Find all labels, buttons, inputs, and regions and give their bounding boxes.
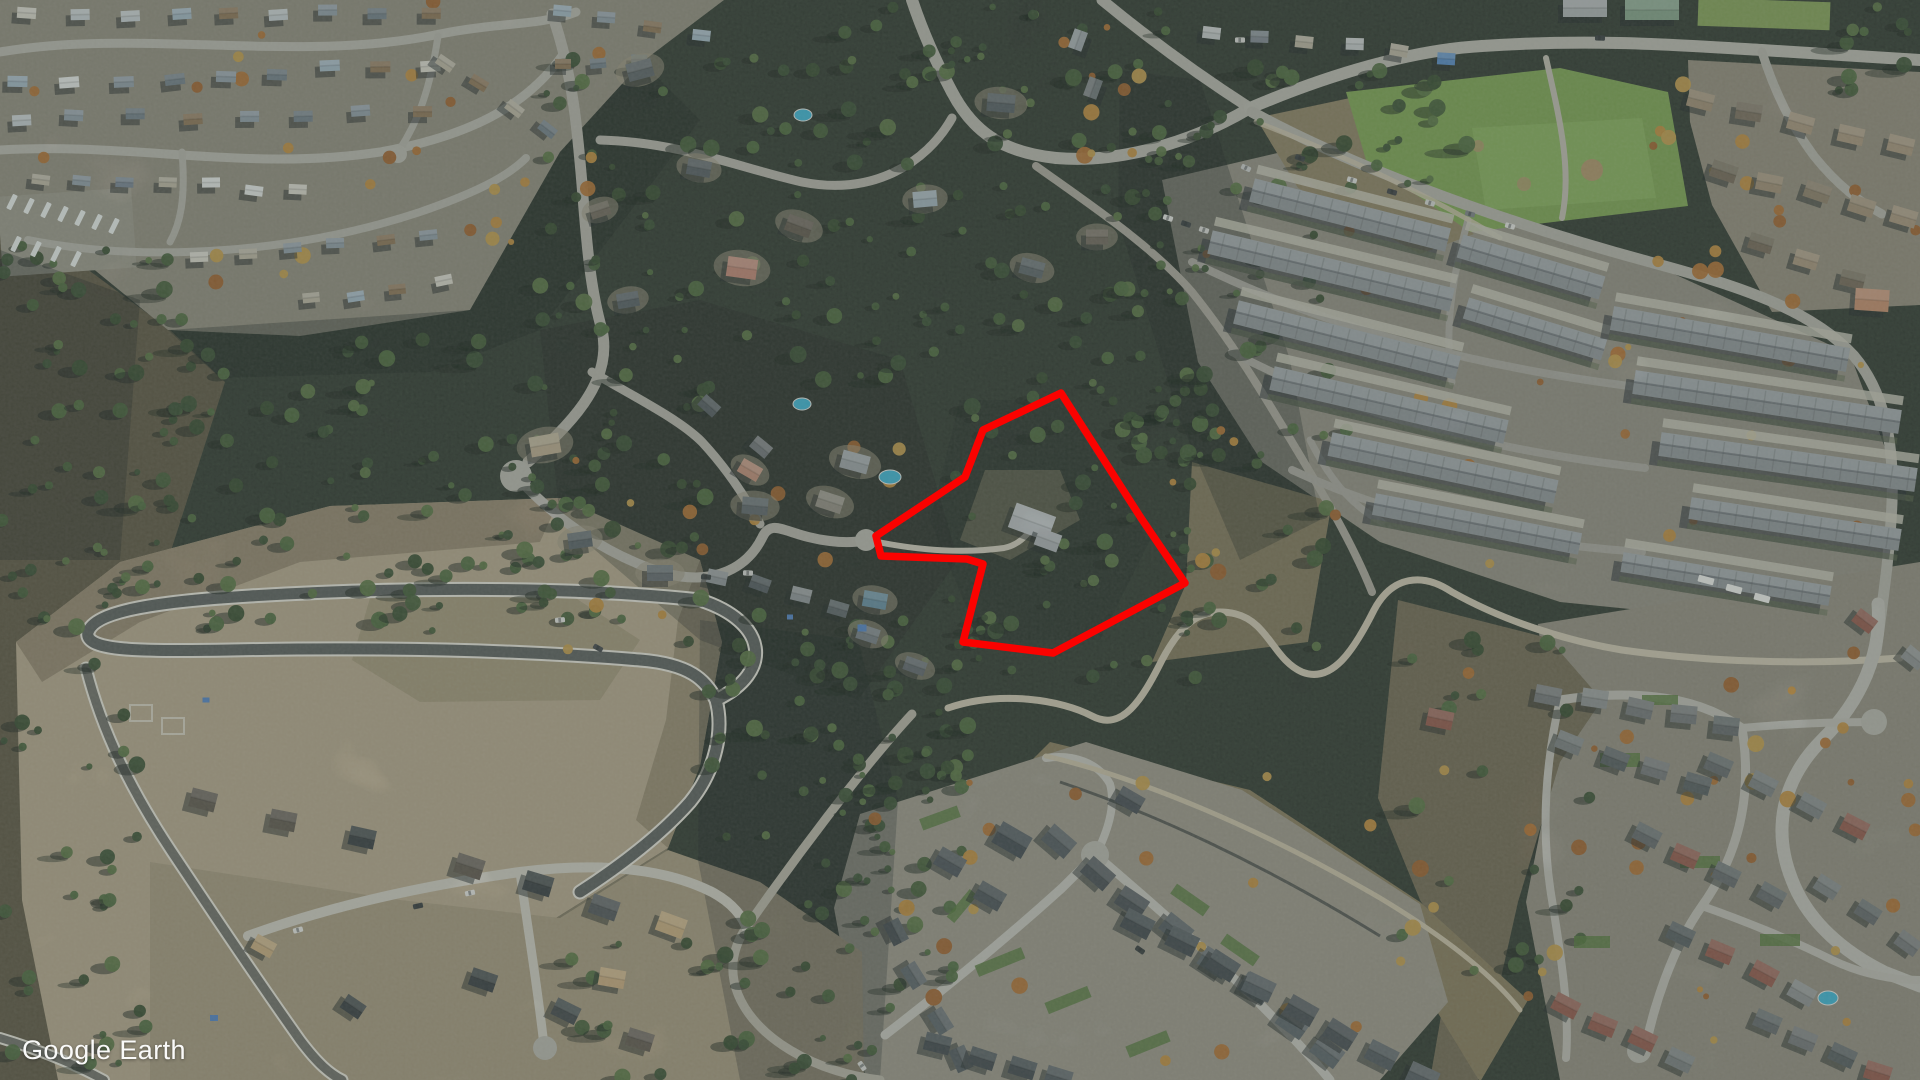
texture-layer [0,0,1920,1080]
aerial-map[interactable] [0,0,1920,1080]
google-earth-watermark: Google Earth [22,1035,186,1066]
google-earth-viewport[interactable]: Google Earth [0,0,1920,1080]
